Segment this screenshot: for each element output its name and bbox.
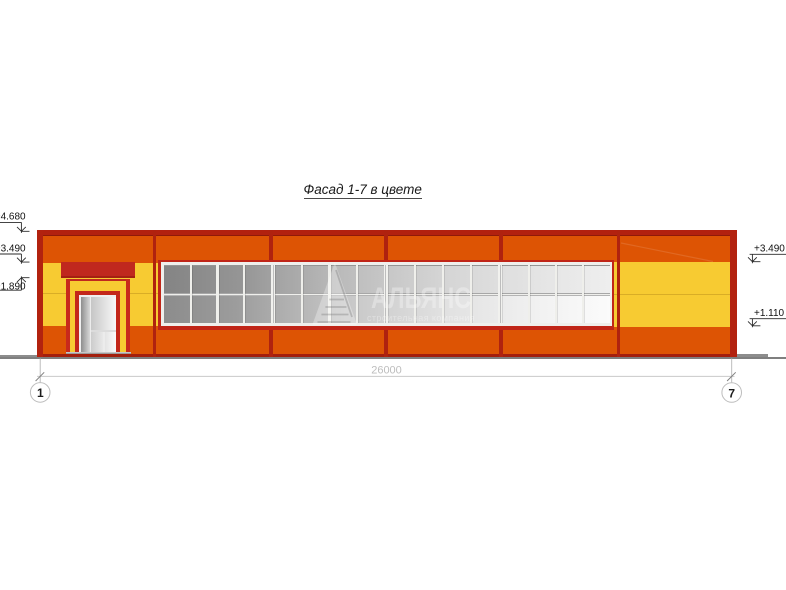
svg-text:+3.490: +3.490 xyxy=(754,244,785,255)
svg-text:7: 7 xyxy=(728,386,735,400)
svg-text:+4.680: +4.680 xyxy=(0,212,26,223)
svg-text:26000: 26000 xyxy=(371,364,402,376)
svg-text:+1.890: +1.890 xyxy=(0,281,26,292)
svg-text:1: 1 xyxy=(37,386,44,400)
svg-text:+1.110: +1.110 xyxy=(754,308,785,319)
svg-text:+3.490: +3.490 xyxy=(0,244,26,255)
